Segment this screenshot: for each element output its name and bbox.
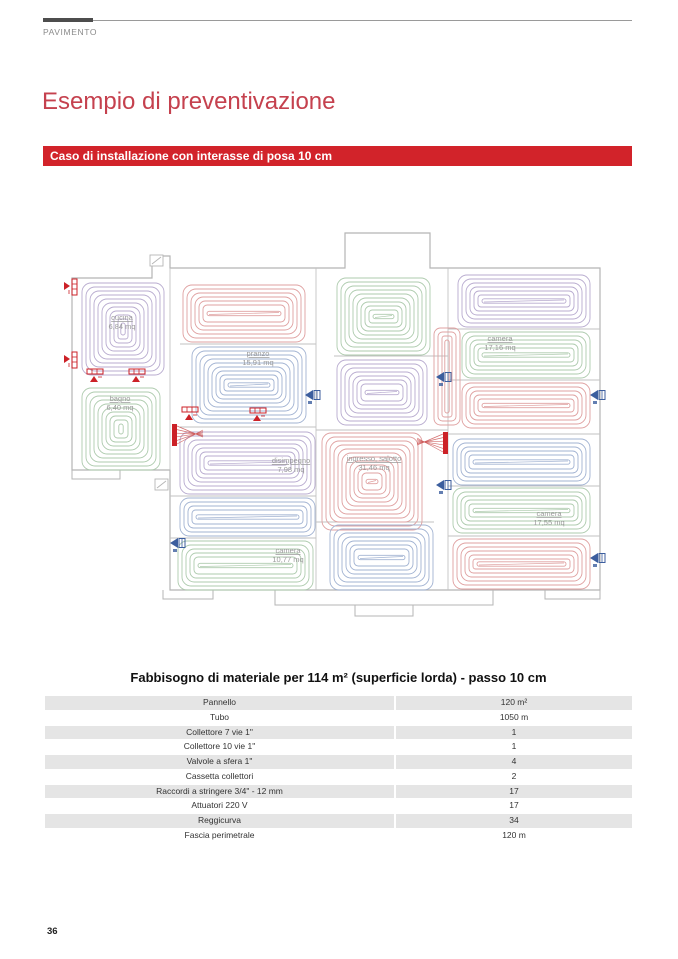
- room-name: cucina: [111, 313, 134, 322]
- heating-zone-camera-17-16: camera17,16 mq: [462, 332, 590, 378]
- heating-zone-zona-blu-destra: [453, 439, 590, 485]
- floor-plan: cucina6,84 mqbagno6,40 mqpranzo15,91 mqd…: [0, 225, 678, 630]
- window-icon: [155, 479, 168, 490]
- porch-outline: [355, 605, 413, 616]
- room-area: 10,77 mq: [272, 555, 303, 564]
- valve-group-icon: [64, 352, 77, 368]
- table-row: Pannello120 m²: [45, 696, 632, 710]
- valve-group-icon: [64, 279, 77, 295]
- table-row: Attuatori 220 V17: [45, 799, 632, 813]
- heating-zone-pranzo: pranzo15,91 mq: [192, 347, 306, 423]
- section-label: PAVIMENTO: [43, 27, 97, 37]
- valve-icon: [305, 390, 320, 404]
- table-row: Fascia perimetrale120 m: [45, 829, 632, 843]
- heating-zone-zona-rossa-destra: [462, 383, 590, 428]
- page-title: Esempio di preventivazione: [42, 88, 336, 116]
- valve-icon: [436, 480, 451, 494]
- heating-zone-zona-rossa-basso-destra: [453, 539, 590, 589]
- header-rule: [43, 20, 632, 21]
- heating-zone-zona-blu-sinistra: [180, 498, 315, 536]
- material-quantity: 1: [396, 740, 632, 754]
- room-area: 6,40 mq: [106, 403, 133, 412]
- material-label: Valvole a sfera 1": [45, 755, 394, 769]
- room-area: 6,84 mq: [108, 322, 135, 331]
- heating-zone-zona-viola-centro: [337, 360, 427, 425]
- material-label: Tubo: [45, 711, 394, 725]
- material-quantity: 120 m: [396, 829, 632, 843]
- heating-zone-zona-viola-destra: [458, 275, 590, 327]
- header-rule-accent: [43, 18, 93, 22]
- table-row: Valvole a sfera 1"4: [45, 755, 632, 769]
- material-quantity: 2: [396, 770, 632, 784]
- heating-zone-disimpegno: disimpegno7,98 mq: [180, 432, 315, 494]
- room-name: camera: [536, 509, 562, 518]
- material-label: Raccordi a stringere 3/4" - 12 mm: [45, 785, 394, 799]
- window-icon: [150, 255, 163, 266]
- material-label: Fascia perimetrale: [45, 829, 394, 843]
- material-quantity: 1050 m: [396, 711, 632, 725]
- material-quantity: 120 m²: [396, 696, 632, 710]
- building-perimeter: [72, 233, 600, 590]
- room-name: camera: [487, 334, 513, 343]
- case-banner: Caso di installazione con interasse di p…: [43, 146, 632, 166]
- heating-zone-zona-blu-centro: [330, 525, 433, 590]
- material-label: Reggicurva: [45, 814, 394, 828]
- room-area: 17,16 mq: [484, 343, 515, 352]
- table-row: Collettore 10 vie 1"1: [45, 740, 632, 754]
- document-page: PAVIMENTO Esempio di preventivazione Cas…: [0, 0, 678, 959]
- room-name: disimpegno: [272, 456, 310, 465]
- room-area: 15,91 mq: [242, 358, 273, 367]
- material-quantity: 34: [396, 814, 632, 828]
- heating-zone-zona-rossa-alto: [183, 285, 305, 342]
- porch-outline: [163, 590, 213, 599]
- heating-zone-camera-10: camera10,77 mq: [178, 541, 313, 590]
- heating-zone-ingresso-salotto: ingresso, salotto31,46 mq: [322, 433, 422, 530]
- room-name: bagno: [110, 394, 131, 403]
- table-row: Raccordi a stringere 3/4" - 12 mm17: [45, 785, 632, 799]
- table-row: Reggicurva34: [45, 814, 632, 828]
- room-area: 17,55 mq: [533, 518, 564, 527]
- porch-outline: [275, 590, 493, 605]
- valve-icon: [590, 390, 605, 404]
- material-quantity: 1: [396, 726, 632, 740]
- material-label: Pannello: [45, 696, 394, 710]
- room-name: camera: [275, 546, 301, 555]
- room-name: ingresso, salotto: [347, 454, 402, 463]
- heating-zone-bagno: bagno6,40 mq: [82, 388, 160, 470]
- heating-zone-cucina: cucina6,84 mq: [82, 283, 164, 375]
- material-label: Collettore 7 vie 1": [45, 726, 394, 740]
- room-area: 7,98 mq: [277, 465, 304, 474]
- valve-icon: [590, 553, 605, 567]
- materials-table: Pannello120 m²Tubo1050 mCollettore 7 vie…: [45, 696, 632, 844]
- page-number: 36: [47, 926, 58, 937]
- table-title: Fabbisogno di materiale per 114 m² (supe…: [45, 670, 632, 685]
- heating-zone-zona-verde-centro: [337, 278, 430, 355]
- table-row: Collettore 7 vie 1"1: [45, 726, 632, 740]
- porch-outline: [72, 470, 120, 479]
- table-row: Cassetta collettori2: [45, 770, 632, 784]
- heating-zone-camera-17-55: camera17,55 mq: [453, 488, 590, 533]
- material-quantity: 17: [396, 799, 632, 813]
- porch-outline: [545, 590, 600, 599]
- material-quantity: 17: [396, 785, 632, 799]
- material-quantity: 4: [396, 755, 632, 769]
- room-name: pranzo: [247, 349, 270, 358]
- table-row: Tubo1050 m: [45, 711, 632, 725]
- material-label: Attuatori 220 V: [45, 799, 394, 813]
- room-area: 31,46 mq: [358, 463, 389, 472]
- material-label: Cassetta collettori: [45, 770, 394, 784]
- material-label: Collettore 10 vie 1": [45, 740, 394, 754]
